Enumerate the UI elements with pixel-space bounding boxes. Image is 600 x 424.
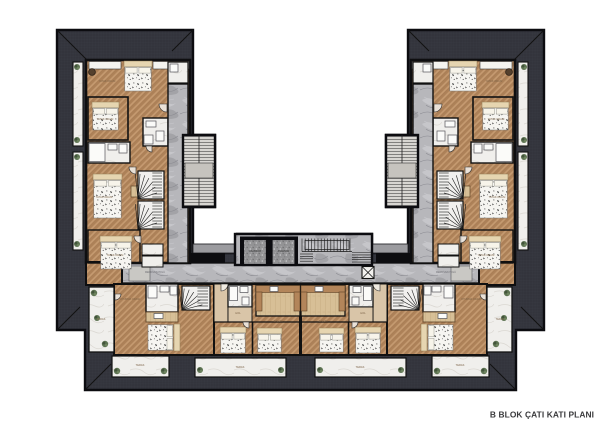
svg-text:YATAK ODASI: YATAK ODASI (488, 117, 505, 121)
svg-text:YATAK ODASI: YATAK ODASI (489, 195, 506, 199)
svg-text:OTURMA ODASI: OTURMA ODASI (461, 297, 481, 301)
svg-text:TERAS: TERAS (97, 317, 106, 321)
svg-text:YATAK ODASI: YATAK ODASI (99, 79, 116, 83)
svg-text:TERAS: TERAS (136, 363, 145, 367)
svg-text:ASANSÖR: ASANSÖR (249, 250, 261, 253)
svg-text:YATAK ODASI: YATAK ODASI (478, 253, 495, 257)
svg-text:SALON: SALON (274, 319, 283, 323)
svg-text:YATAK ODASI: YATAK ODASI (97, 117, 114, 121)
svg-text:MERDİVEN HOLÜ: MERDİVEN HOLÜ (145, 271, 165, 274)
svg-text:ASANSÖR: ASANSÖR (278, 250, 290, 253)
svg-text:YATAK ODASI: YATAK ODASI (96, 195, 113, 199)
svg-text:HOL: HOL (235, 311, 241, 315)
svg-text:B BLOK ÇATI KATI PLANI: B BLOK ÇATI KATI PLANI (490, 410, 594, 420)
svg-text:YATAK ODASI: YATAK ODASI (107, 253, 124, 257)
svg-text:TERAS: TERAS (356, 365, 365, 369)
svg-text:HOL: HOL (360, 311, 366, 315)
svg-text:SALON: SALON (319, 319, 328, 323)
svg-text:YATAK ODASI: YATAK ODASI (486, 79, 503, 83)
svg-text:MERDİVEN HOLÜ: MERDİVEN HOLÜ (436, 271, 456, 274)
svg-text:TERAS: TERAS (496, 317, 505, 321)
svg-text:TERAS: TERAS (236, 365, 245, 369)
svg-text:TERAS: TERAS (456, 363, 465, 367)
svg-text:OTURMA ODASI: OTURMA ODASI (120, 297, 140, 301)
